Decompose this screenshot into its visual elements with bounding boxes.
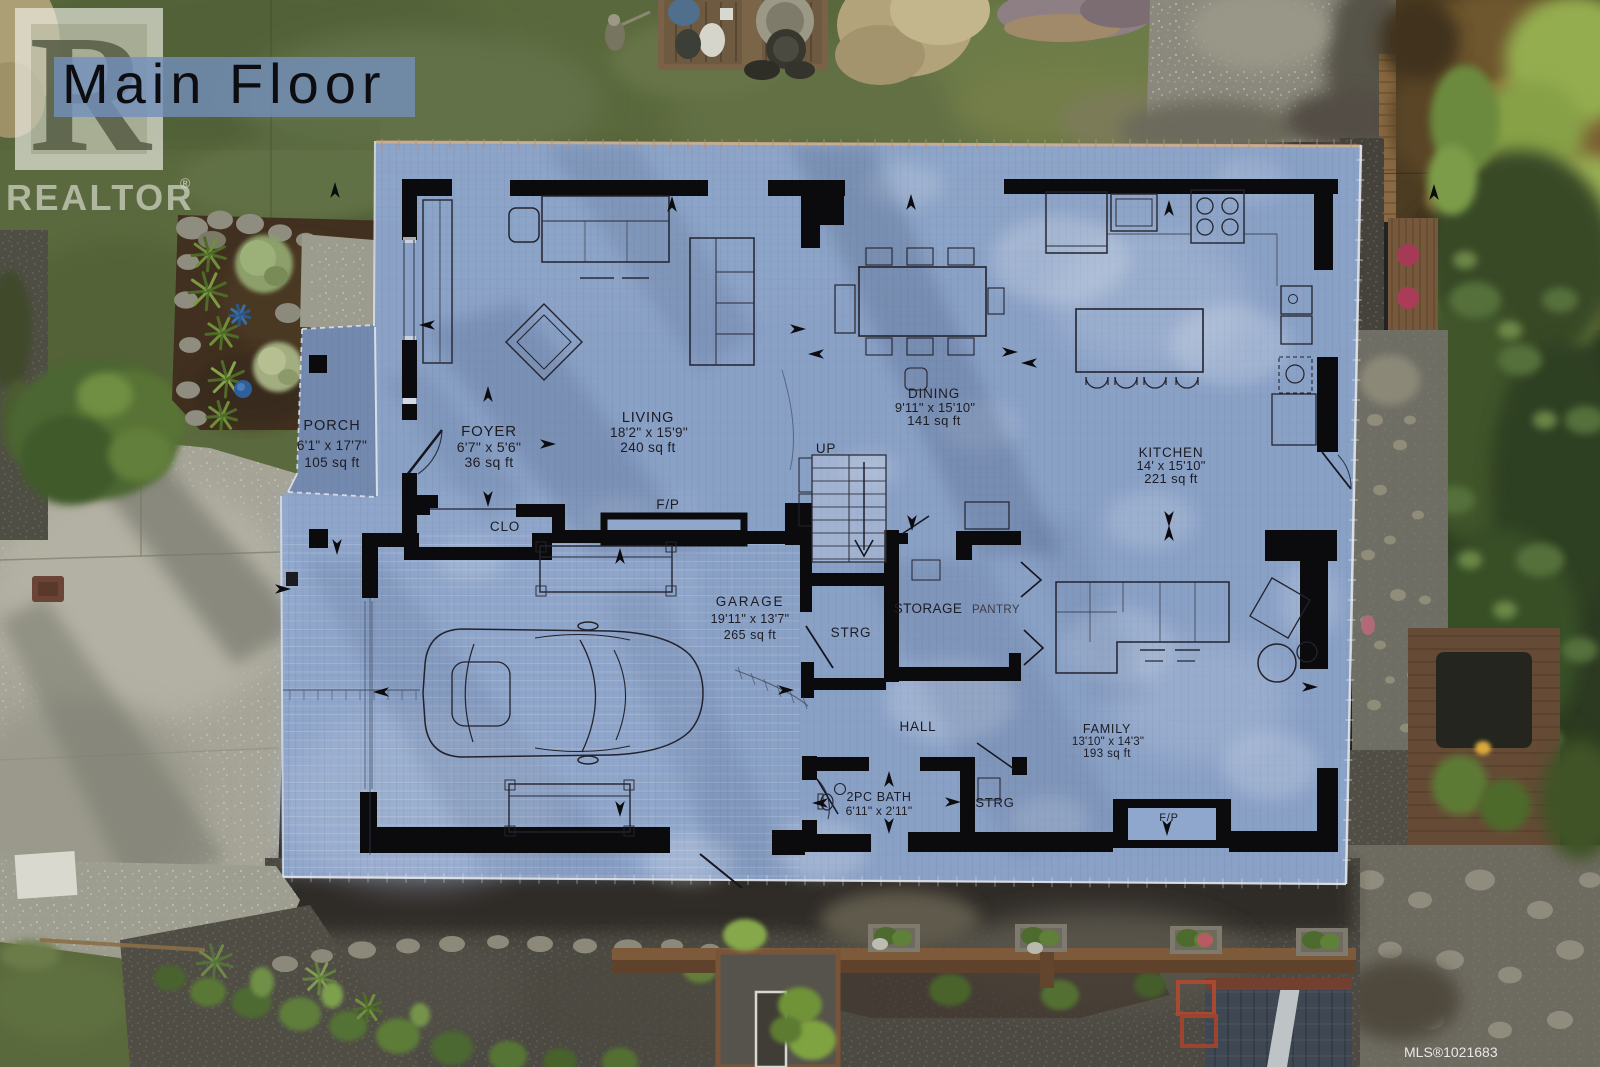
svg-text:105 sq ft: 105 sq ft <box>304 455 359 470</box>
svg-text:240 sq ft: 240 sq ft <box>620 440 675 455</box>
svg-text:CLO: CLO <box>490 519 520 534</box>
svg-text:HALL: HALL <box>900 719 937 734</box>
svg-text:6'7" x 5'6": 6'7" x 5'6" <box>457 439 522 455</box>
svg-text:193 sq ft: 193 sq ft <box>1083 748 1131 760</box>
svg-text:265 sq ft: 265 sq ft <box>724 628 776 642</box>
svg-text:FAMILY: FAMILY <box>1083 722 1131 736</box>
svg-text:F/P: F/P <box>1159 812 1179 824</box>
svg-text:Main Floor: Main Floor <box>62 52 387 115</box>
svg-text:19'11" x 13'7": 19'11" x 13'7" <box>711 612 790 626</box>
svg-text:FOYER: FOYER <box>461 423 517 440</box>
svg-text:36 sq ft: 36 sq ft <box>464 454 513 470</box>
svg-text:®: ® <box>180 175 191 191</box>
svg-text:141 sq ft: 141 sq ft <box>907 413 960 428</box>
svg-text:6'1" x 17'7": 6'1" x 17'7" <box>297 438 367 453</box>
svg-text:DINING: DINING <box>908 386 960 401</box>
svg-text:STORAGE: STORAGE <box>894 601 963 616</box>
svg-text:UP: UP <box>816 441 836 456</box>
svg-text:PANTRY: PANTRY <box>972 604 1020 616</box>
svg-text:18'2" x 15'9": 18'2" x 15'9" <box>610 425 688 440</box>
svg-text:2PC BATH: 2PC BATH <box>847 790 912 804</box>
svg-text:13'10" x 14'3": 13'10" x 14'3" <box>1072 736 1144 748</box>
svg-text:STRG: STRG <box>975 795 1014 810</box>
svg-text:6'11" x 2'11": 6'11" x 2'11" <box>846 804 913 818</box>
svg-text:STRG: STRG <box>831 625 872 640</box>
svg-text:F/P: F/P <box>656 497 679 512</box>
svg-text:REALTOR: REALTOR <box>6 177 194 218</box>
svg-text:PORCH: PORCH <box>303 418 360 434</box>
svg-text:MLS®1021683: MLS®1021683 <box>1404 1044 1498 1060</box>
svg-text:LIVING: LIVING <box>622 410 674 426</box>
svg-text:221 sq ft: 221 sq ft <box>1144 471 1197 486</box>
svg-text:GARAGE: GARAGE <box>716 594 785 609</box>
